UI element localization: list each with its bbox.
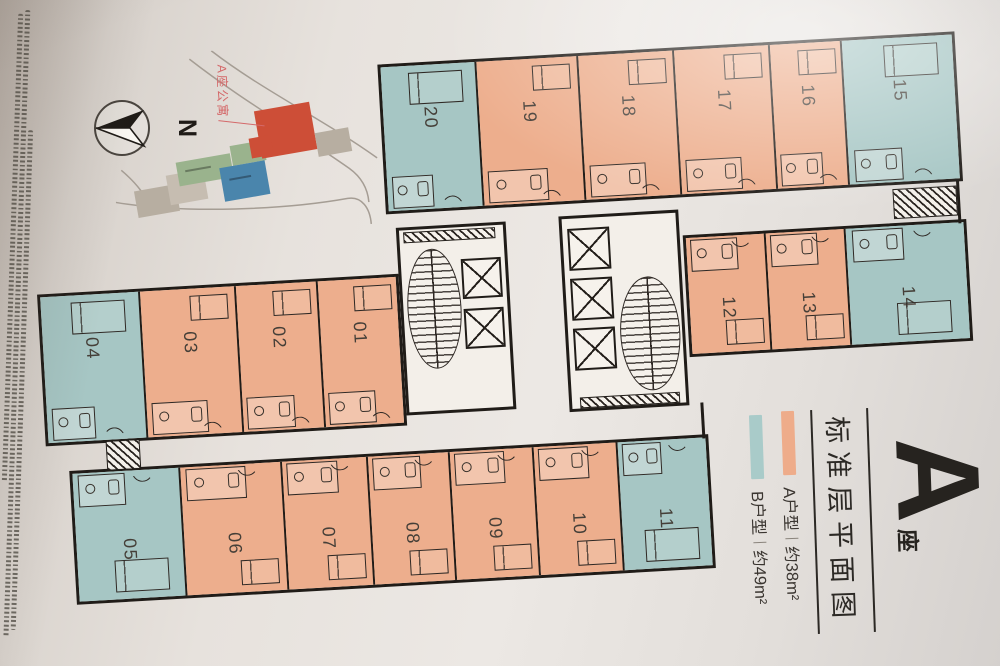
unit-number: 06: [224, 532, 246, 556]
unit-number: 20: [419, 106, 441, 130]
corridor-vestibule: [106, 439, 142, 471]
unit-08: 08: [368, 452, 457, 585]
unit-number: 18: [617, 94, 639, 118]
bed-outline: [190, 294, 229, 321]
unit-number: 07: [317, 526, 339, 550]
door-arc-icon: [911, 168, 934, 181]
type-a-swatch: [781, 411, 796, 475]
wing-upper-right: 12 13 14: [683, 219, 974, 357]
bed-outline: [241, 558, 280, 585]
site-callout-label: A座公寓: [214, 64, 230, 118]
bathroom-pod: [622, 442, 663, 476]
bed-outline: [408, 70, 464, 105]
bed-outline: [725, 318, 764, 345]
door-arc-icon: [103, 427, 126, 440]
site-building-block-a: [249, 135, 274, 159]
bed-outline: [410, 548, 449, 575]
elevator-shaft: [461, 257, 503, 299]
unit-number: 17: [713, 89, 735, 113]
door-arc-icon: [441, 195, 464, 208]
bed-outline: [353, 284, 392, 311]
site-building-gray: [315, 127, 353, 157]
bathroom-pod: [392, 175, 435, 209]
bed-outline: [71, 300, 127, 335]
hatched-shaft: [580, 392, 680, 409]
door-arc-icon: [667, 438, 690, 451]
unit-number: 11: [655, 508, 677, 531]
unit-04: 04: [40, 292, 148, 444]
unit-number: 03: [179, 331, 201, 355]
bed-outline: [628, 58, 667, 85]
bed-outline: [115, 557, 171, 592]
bed-outline: [577, 539, 616, 566]
door-arc-icon: [912, 224, 935, 237]
wing-middle-left: 04 03 02 01: [37, 274, 407, 447]
unit-15: 15: [842, 35, 960, 185]
block-suffix: 座: [892, 528, 927, 552]
bathroom-pod: [78, 473, 126, 508]
bed-outline: [805, 313, 844, 340]
block-title: A 座: [862, 397, 1000, 591]
bathroom-pod: [852, 228, 905, 263]
unit-19: 19: [476, 56, 586, 206]
elevator-shaft: [464, 307, 506, 349]
unit-09: 09: [450, 447, 541, 580]
bed-outline: [724, 52, 763, 79]
plan-title: 标准层平面图: [810, 408, 876, 634]
hatched-shaft: [403, 227, 495, 243]
north-label: N: [173, 119, 201, 137]
bed-outline: [797, 48, 836, 75]
type-a-area: 约38m²: [781, 546, 807, 601]
floor-plan-photo: N A座公寓 20: [0, 0, 1000, 666]
type-b-swatch: [749, 415, 764, 479]
unit-number: 19: [518, 100, 540, 124]
unit-number: 16: [797, 84, 819, 108]
unit-18: 18: [578, 51, 682, 200]
bed-outline: [494, 544, 533, 571]
elevator-shaft: [573, 326, 617, 370]
unit-02: 02: [236, 281, 326, 431]
unit-14: 14: [846, 222, 970, 345]
unit-13: 13: [766, 229, 853, 349]
bed-outline: [273, 289, 312, 316]
elevator-core-right: [558, 210, 689, 413]
door-arc-icon: [132, 469, 155, 482]
bed-outline: [897, 300, 953, 335]
bathroom-pod: [854, 148, 904, 183]
elevator-shaft: [567, 227, 611, 271]
unit-16: 16: [770, 41, 850, 189]
unit-17: 17: [674, 45, 778, 194]
legend-separator: [754, 542, 767, 544]
unit-number: 09: [484, 517, 506, 541]
wing-top: 20 19 18 17 16 15: [377, 31, 963, 214]
stair-core-left: [396, 221, 517, 415]
unit-number: 01: [349, 321, 371, 345]
unit-05: 05: [72, 468, 187, 602]
unit-07: 07: [282, 457, 375, 590]
unit-01: 01: [318, 277, 404, 427]
unit-number: 04: [81, 336, 103, 360]
unit-06: 06: [180, 462, 289, 596]
wing-bottom: 05 06 07 08 09 10: [69, 434, 716, 605]
service-shaft: [892, 185, 958, 219]
unit-number: 10: [568, 512, 590, 536]
block-letter: A: [877, 435, 998, 524]
unit-12: 12: [686, 234, 773, 354]
unit-10: 10: [534, 442, 625, 575]
unit-11: 11: [617, 437, 712, 570]
compass: N: [84, 88, 214, 172]
bed-outline: [644, 527, 700, 562]
unit-number: 15: [889, 79, 911, 103]
unit-number: 12: [718, 296, 740, 320]
unit-number: 02: [268, 326, 290, 350]
unit-number: 13: [798, 291, 820, 315]
corridor-wall: [700, 402, 705, 438]
unit-03: 03: [140, 286, 244, 437]
bed-outline: [328, 553, 367, 580]
legend-separator: [786, 538, 799, 540]
type-b-area: 约49m²: [749, 550, 775, 605]
staircase: [617, 275, 683, 392]
unit-20: 20: [381, 62, 485, 211]
elevator-shaft: [570, 276, 614, 320]
bed-outline: [532, 64, 571, 91]
staircase: [404, 247, 465, 370]
type-a-label: A户型: [779, 487, 805, 532]
type-b-label: B户型: [747, 491, 773, 536]
unit-number: 08: [401, 522, 423, 546]
bathroom-pod: [52, 406, 97, 440]
corridor-wall: [956, 179, 962, 223]
bed-outline: [883, 42, 939, 77]
